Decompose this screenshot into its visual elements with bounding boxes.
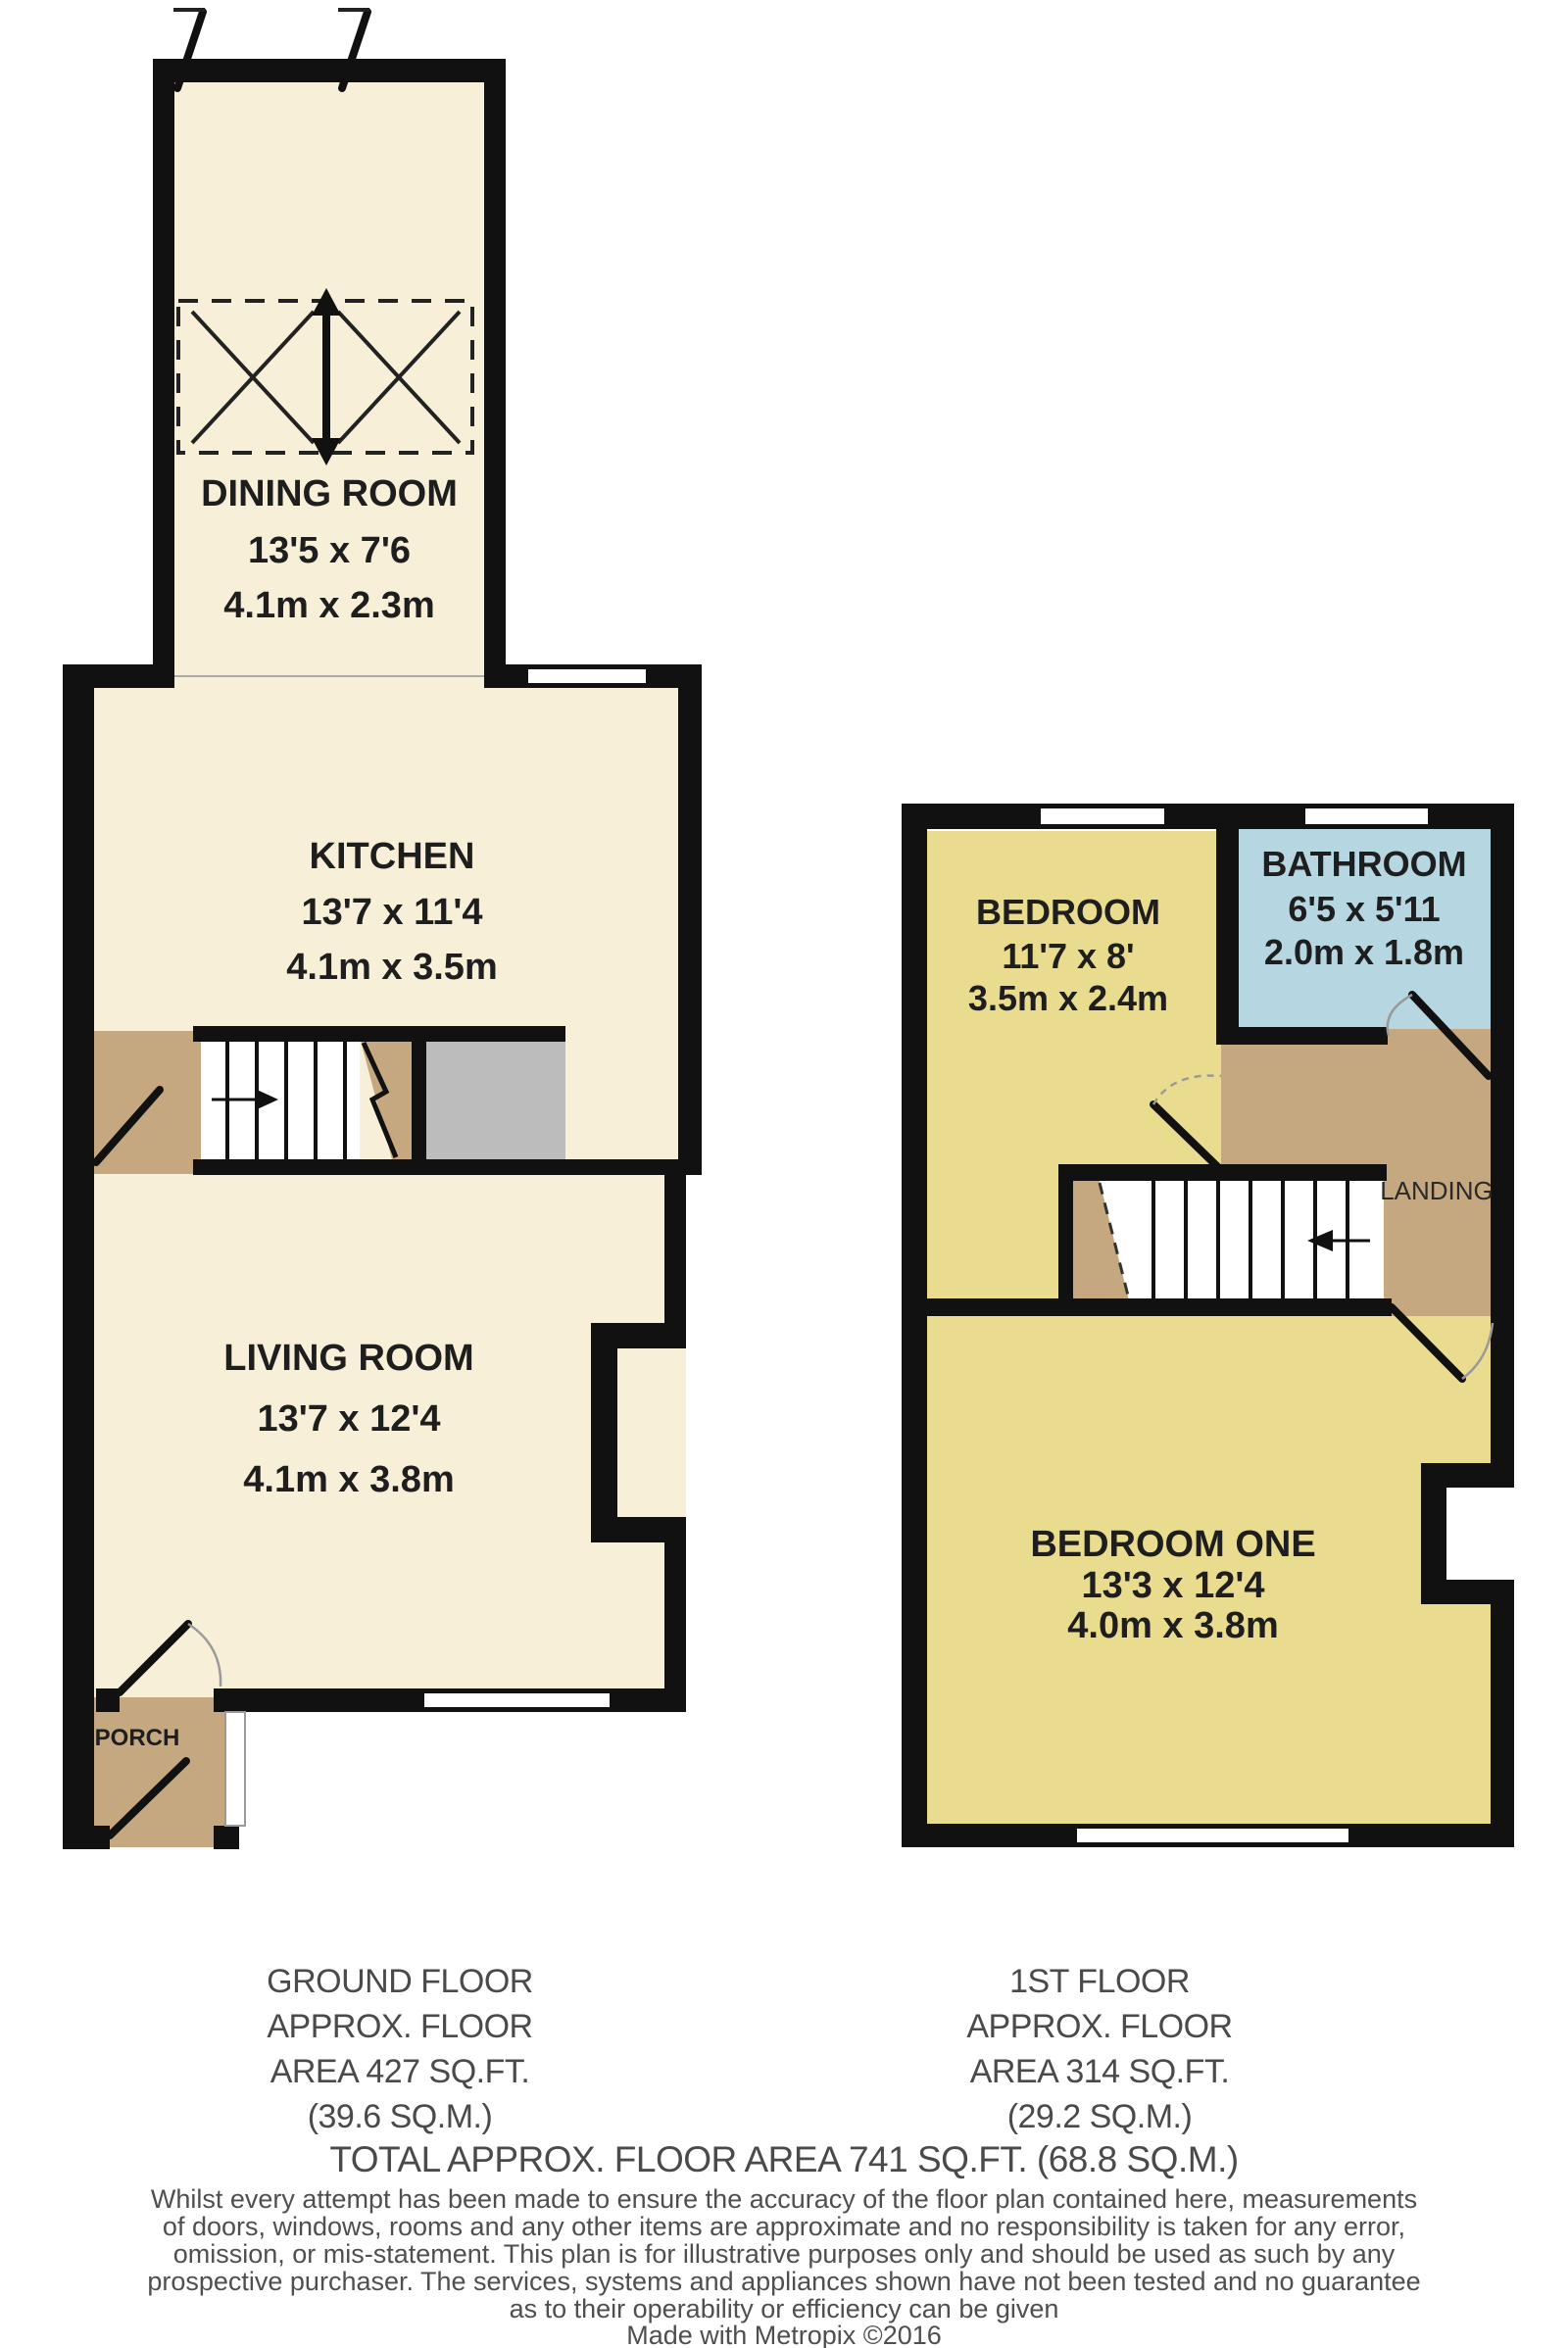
caption-line: 1ST FLOOR bbox=[1009, 1963, 1190, 2000]
disclaimer-line: prospective purchaser. The services, sys… bbox=[147, 2267, 1420, 2296]
bathroom-label: BATHROOM bbox=[1261, 844, 1466, 884]
dining-room-size-metric: 4.1m x 2.3m bbox=[223, 585, 434, 626]
living-room-size-metric: 4.1m x 3.8m bbox=[243, 1459, 454, 1500]
living-room-size-imperial: 13'7 x 12'4 bbox=[257, 1398, 440, 1440]
living-room-window bbox=[423, 1692, 611, 1708]
bedroom-one-size-metric: 4.0m x 3.8m bbox=[1067, 1605, 1278, 1646]
disclaimer-line: as to their operability or efficiency ca… bbox=[510, 2294, 1059, 2324]
first-floor-plan: BEDROOM 11'7 x 8' 3.5m x 2.4m BATHROOM 6… bbox=[902, 804, 1514, 1847]
dining-room-size-imperial: 13'5 x 7'6 bbox=[248, 530, 411, 571]
bedroom-one-recess bbox=[1446, 1488, 1514, 1580]
total-area-caption: TOTAL APPROX. FLOOR AREA 741 SQ.FT. (68.… bbox=[329, 2139, 1238, 2179]
disclaimer-line: omission, or mis-statement. This plan is… bbox=[173, 2239, 1396, 2269]
bedroom-one-window bbox=[1076, 1828, 1349, 1843]
caption-line: (39.6 SQ.M.) bbox=[308, 2098, 493, 2135]
landing-label: LANDING bbox=[1380, 1176, 1494, 1205]
caption-line: APPROX. FLOOR bbox=[267, 2008, 532, 2045]
bedroom-window bbox=[1040, 807, 1165, 825]
kitchen-window bbox=[527, 668, 647, 684]
disclaimer-line: of doors, windows, rooms and any other i… bbox=[163, 2212, 1405, 2241]
metropix-credit: Made with Metropix ©2016 bbox=[626, 2321, 942, 2348]
bedroom-size-metric: 3.5m x 2.4m bbox=[968, 978, 1168, 1018]
bathroom-size-metric: 2.0m x 1.8m bbox=[1264, 932, 1464, 972]
porch-label: PORCH bbox=[95, 1725, 180, 1751]
caption-line: (29.2 SQ.M.) bbox=[1007, 2098, 1193, 2135]
living-room-label: LIVING ROOM bbox=[223, 1338, 473, 1379]
kitchen-label: KITCHEN bbox=[310, 836, 475, 877]
bedroom-size-imperial: 11'7 x 8' bbox=[1002, 936, 1134, 976]
bedroom-label: BEDROOM bbox=[976, 892, 1160, 932]
first-floor-area-caption: 1ST FLOOR APPROX. FLOOR AREA 314 SQ.FT. … bbox=[966, 1963, 1232, 2135]
caption-line: AREA 314 SQ.FT. bbox=[970, 2053, 1230, 2090]
caption-line: GROUND FLOOR bbox=[267, 1963, 533, 2000]
dining-room-label: DINING ROOM bbox=[201, 473, 458, 514]
bathroom-window bbox=[1304, 807, 1429, 825]
kitchen-size-imperial: 13'7 x 11'4 bbox=[301, 892, 482, 933]
caption-line: APPROX. FLOOR bbox=[966, 2008, 1232, 2045]
bathroom-size-imperial: 6'5 x 5'11 bbox=[1288, 889, 1440, 929]
understairs-storage bbox=[426, 1041, 565, 1159]
kitchen-size-metric: 4.1m x 3.5m bbox=[286, 947, 497, 988]
caption-line: AREA 427 SQ.FT. bbox=[270, 2053, 530, 2090]
disclaimer: Whilst every attempt has been made to en… bbox=[147, 2184, 1420, 2348]
ground-floor-area-caption: GROUND FLOOR APPROX. FLOOR AREA 427 SQ.F… bbox=[267, 1963, 533, 2135]
ground-floor-plan: DINING ROOM 13'5 x 7'6 4.1m x 2.3m KITCH… bbox=[63, 10, 702, 1849]
floorplan-page: DINING ROOM 13'5 x 7'6 4.1m x 2.3m KITCH… bbox=[0, 0, 1568, 2348]
porch-floor bbox=[94, 1697, 227, 1847]
bedroom-one-size-imperial: 13'3 x 12'4 bbox=[1081, 1565, 1264, 1606]
disclaimer-line: Whilst every attempt has been made to en… bbox=[151, 2184, 1417, 2214]
floorplan-canvas: DINING ROOM 13'5 x 7'6 4.1m x 2.3m KITCH… bbox=[0, 0, 1568, 2348]
porch-side-window bbox=[225, 1712, 245, 1826]
bedroom-one-label: BEDROOM ONE bbox=[1030, 1524, 1315, 1565]
